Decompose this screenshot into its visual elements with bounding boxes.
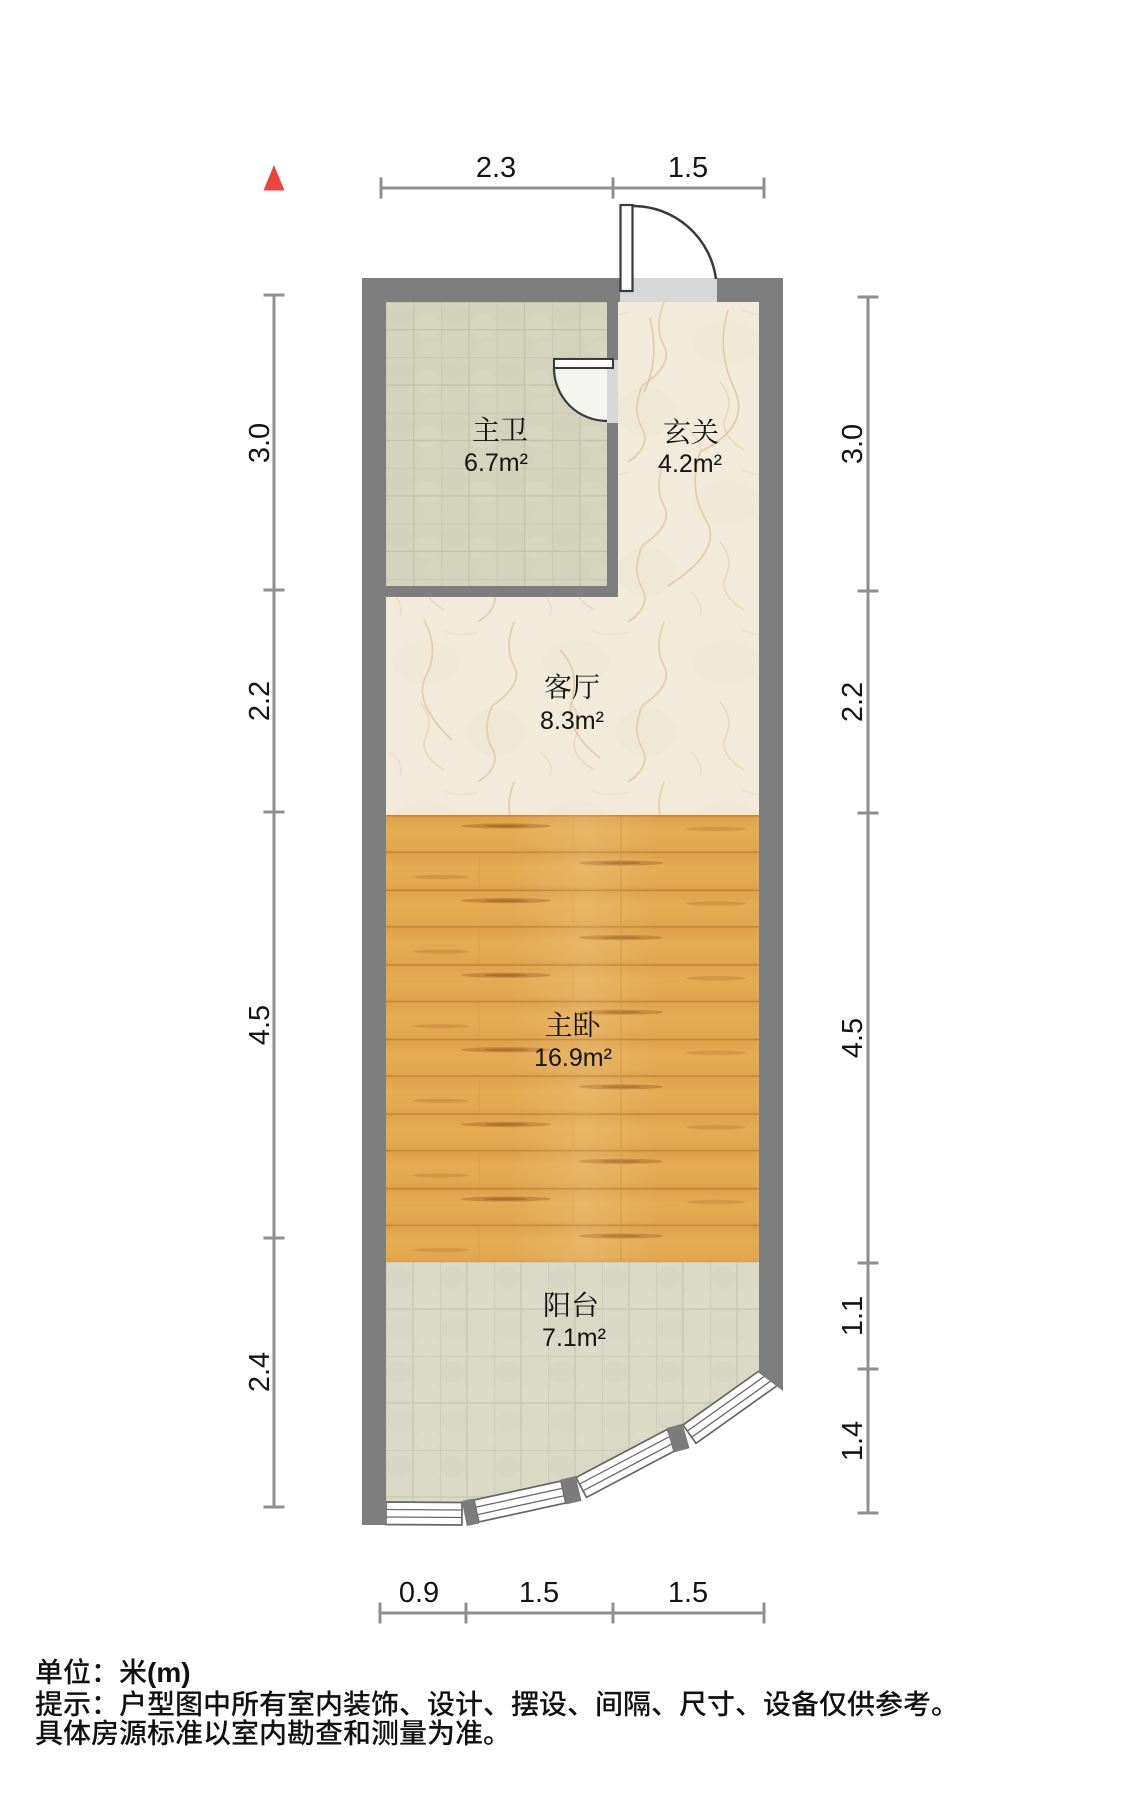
svg-text:2.3: 2.3: [476, 152, 516, 184]
svg-text:8.3m²: 8.3m²: [540, 707, 604, 735]
svg-text:16.9m²: 16.9m²: [534, 1044, 612, 1072]
svg-text:3.0: 3.0: [244, 423, 276, 463]
svg-text:3.0: 3.0: [837, 424, 869, 464]
svg-text:4.5: 4.5: [244, 1005, 276, 1045]
svg-text:6.7m²: 6.7m²: [464, 449, 528, 477]
svg-text:1.4: 1.4: [837, 1421, 869, 1461]
svg-text:2.4: 2.4: [244, 1352, 276, 1392]
svg-text:7.1m²: 7.1m²: [542, 1324, 606, 1352]
svg-text:1.5: 1.5: [668, 152, 708, 184]
svg-text:(m): (m): [147, 1657, 191, 1688]
svg-text:1.1: 1.1: [837, 1296, 869, 1336]
svg-text:4.5: 4.5: [837, 1018, 869, 1058]
svg-text:1.5: 1.5: [668, 1577, 708, 1609]
svg-text:4.2m²: 4.2m²: [658, 450, 722, 478]
svg-text:2.2: 2.2: [244, 681, 276, 721]
svg-text:0.9: 0.9: [399, 1577, 439, 1609]
svg-text:1.5: 1.5: [519, 1577, 559, 1609]
svg-text:2.2: 2.2: [837, 682, 869, 722]
